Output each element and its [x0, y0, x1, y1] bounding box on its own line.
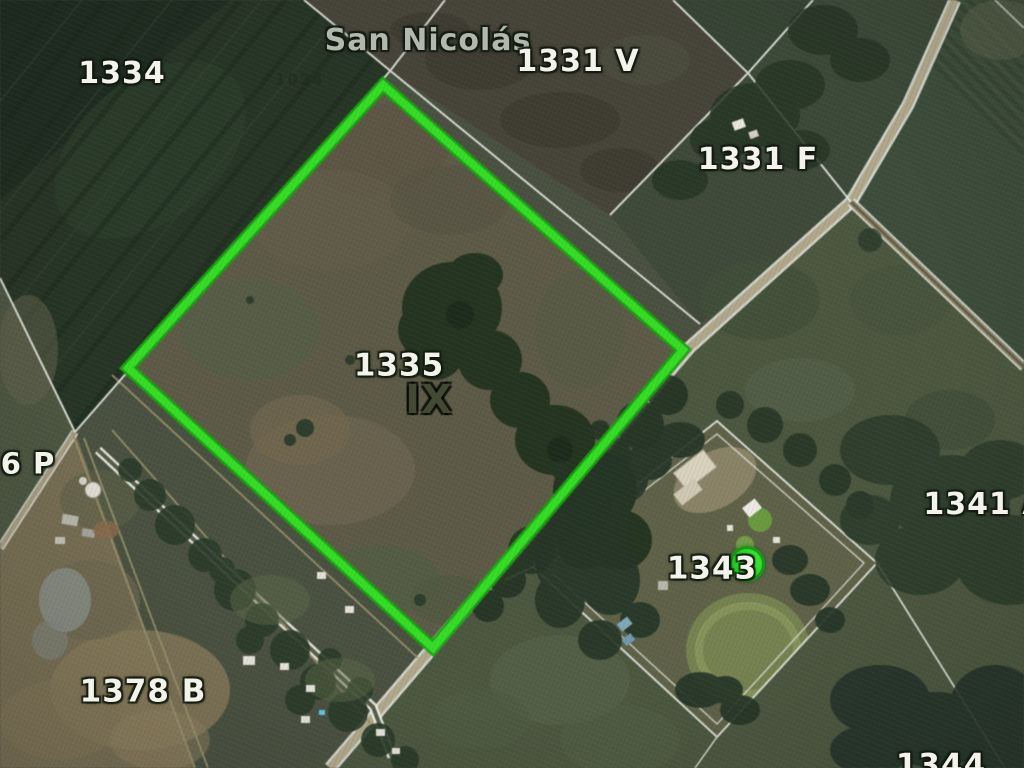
parcel-label-1341-a: 1341 A	[923, 490, 1024, 520]
parcel-label-1334: 1334	[78, 59, 166, 89]
satellite-map-stage[interactable]: San Nicolás 1334 1331 V 1331 F 1335 IX 6…	[0, 0, 1024, 768]
parcel-label-6-p: 6 P	[1, 450, 56, 479]
parcel-label-1331-f: 1331 F	[698, 145, 818, 175]
locality-label-san-nicolas: San Nicolás	[325, 26, 532, 56]
map-watermark: 1024	[275, 73, 325, 88]
parcel-label-1344: 1344	[896, 751, 986, 768]
parcel-label-1343: 1343	[667, 554, 757, 585]
parcel-label-1331-v: 1331 V	[516, 47, 639, 77]
map-labels: San Nicolás 1334 1331 V 1331 F 1335 IX 6…	[0, 0, 1024, 768]
parcel-label-1378-b: 1378 B	[80, 677, 207, 708]
parcel-label-1335-zone-ix: IX	[405, 380, 453, 420]
